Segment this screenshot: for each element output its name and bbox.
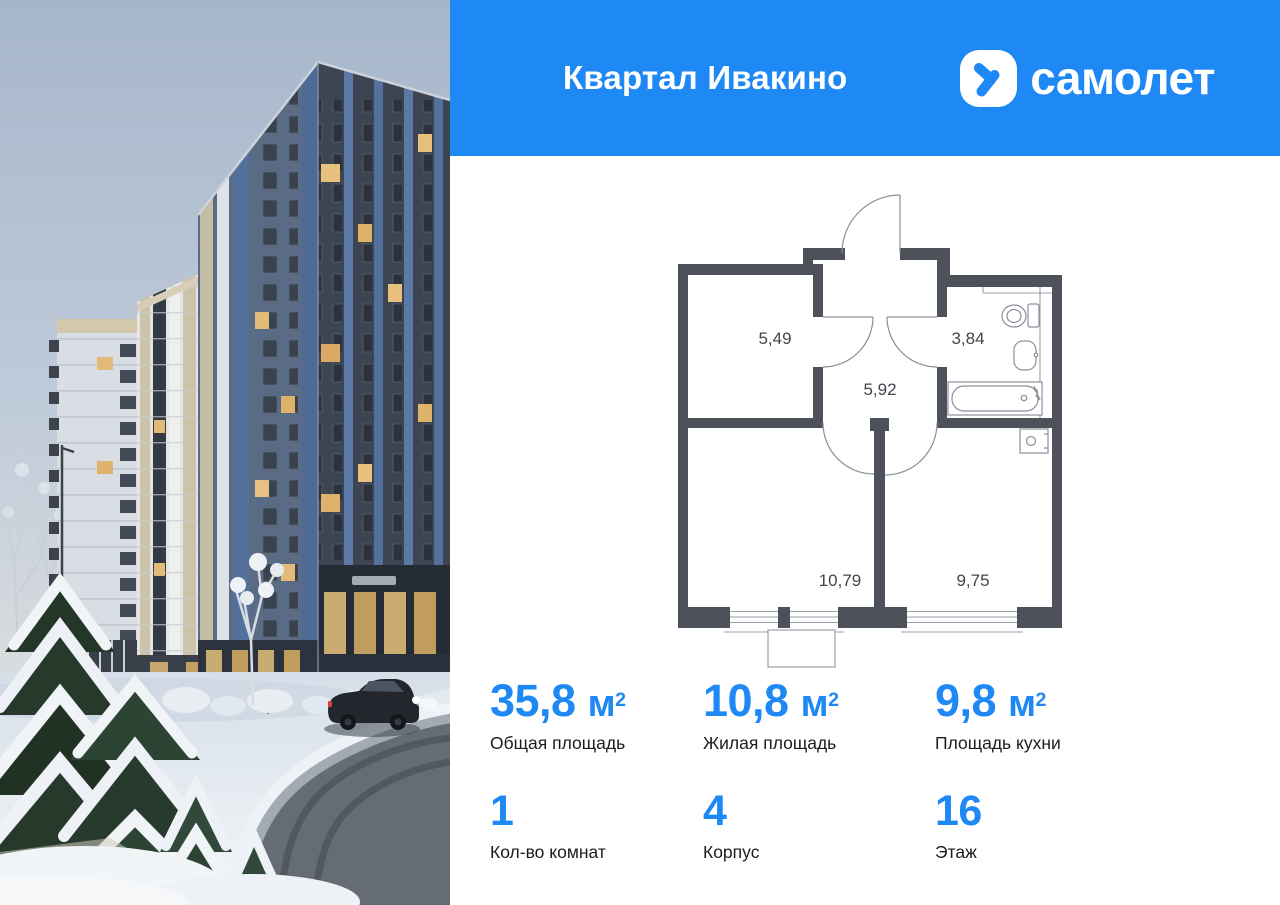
listing-card: Квартал Ивакино самолет: [0, 0, 1280, 905]
stat-rooms-label: Кол-во комнат: [490, 842, 703, 863]
stat-building: 4 Корпус: [703, 790, 935, 863]
stat-living-area-label: Жилая площадь: [703, 733, 935, 754]
stat-living-area: 10,8 м2 Жилая площадь: [703, 678, 935, 754]
listing-details: Квартал Ивакино самолет: [450, 0, 1280, 905]
area-storage: 5,49: [758, 329, 791, 348]
stat-rooms-value: 1: [490, 790, 703, 833]
balcony: [768, 630, 835, 667]
floor-plan: 5,49 5,92 3,84 10,79 9,75: [678, 190, 1062, 668]
exterior-walls: [678, 248, 1062, 628]
stat-kitchen-area-value: 9,8 м2: [935, 678, 1280, 724]
storefront-sign: [352, 576, 396, 585]
stat-rooms: 1 Кол-во комнат: [490, 790, 703, 863]
stat-floor: 16 Этаж: [935, 790, 1280, 863]
samolet-logo: самолет: [960, 50, 1215, 107]
header: Квартал Ивакино самолет: [450, 0, 1280, 156]
winter-buildings-illustration: [0, 0, 450, 905]
bath-sink-icon: [1014, 341, 1036, 370]
samolet-logo-icon: [960, 50, 1017, 107]
entrance-door-arc: [842, 195, 900, 253]
toilet-tank-icon: [1028, 304, 1039, 327]
stat-kitchen-area: 9,8 м2 Площадь кухни: [935, 678, 1280, 754]
stat-total-area-value: 35,8 м2: [490, 678, 703, 724]
stat-building-value: 4: [703, 790, 935, 833]
development-photo: [0, 0, 450, 905]
tower-right-face: [318, 62, 450, 772]
stat-floor-label: Этаж: [935, 842, 1280, 863]
stats-grid: 35,8 м2 Общая площадь 10,8 м2 Жилая площ…: [450, 678, 1280, 863]
area-hallway: 5,92: [863, 380, 896, 399]
area-bathroom: 3,84: [951, 329, 984, 348]
stat-building-label: Корпус: [703, 842, 935, 863]
stat-floor-value: 16: [935, 790, 1280, 833]
stat-total-area-label: Общая площадь: [490, 733, 703, 754]
kitchen-sink-icon: [1020, 429, 1048, 453]
stat-total-area: 35,8 м2 Общая площадь: [490, 678, 703, 754]
area-kitchen: 9,75: [956, 571, 989, 590]
brand-name: самолет: [1030, 55, 1215, 101]
interior-walls: [688, 260, 1052, 607]
bathroom-fixtures: [948, 304, 1042, 415]
project-title: Квартал Ивакино: [563, 59, 848, 97]
stat-living-area-value: 10,8 м2: [703, 678, 935, 724]
area-living-room: 10,79: [819, 571, 862, 590]
stat-kitchen-area-label: Площадь кухни: [935, 733, 1280, 754]
